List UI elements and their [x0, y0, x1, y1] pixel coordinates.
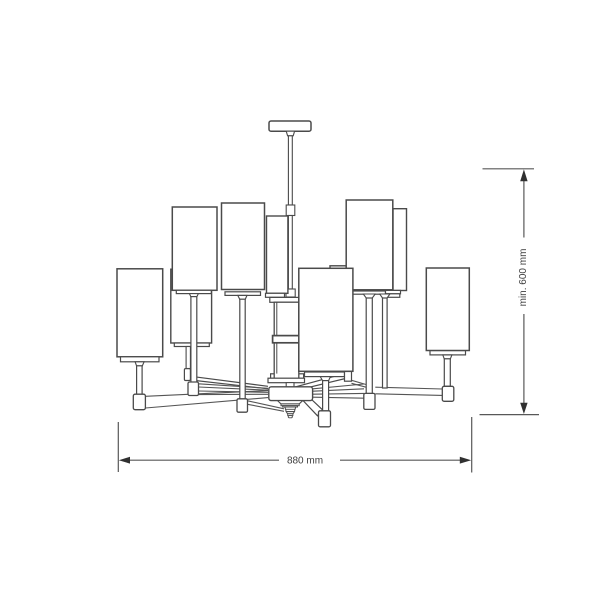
svg-text:min. 600 mm: min. 600 mm [518, 249, 529, 307]
svg-text:880 mm: 880 mm [287, 456, 323, 467]
